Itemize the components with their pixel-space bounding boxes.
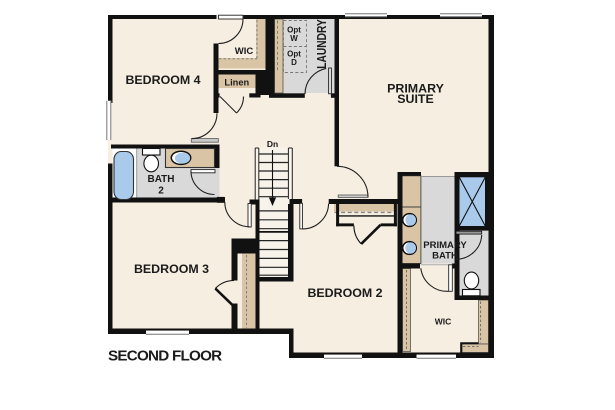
svg-text:Linen: Linen (224, 77, 249, 87)
svg-text:WIC: WIC (235, 46, 254, 57)
svg-text:2: 2 (158, 186, 164, 197)
svg-text:W: W (290, 34, 298, 43)
svg-text:WIC: WIC (435, 317, 452, 327)
svg-text:PRIMARY: PRIMARY (423, 240, 467, 251)
svg-text:SECOND FLOOR: SECOND FLOOR (108, 348, 222, 365)
svg-text:SUITE: SUITE (397, 92, 434, 106)
svg-text:BATH: BATH (432, 251, 458, 262)
svg-text:Dn: Dn (267, 139, 278, 149)
svg-text:D: D (291, 58, 297, 67)
svg-text:BEDROOM 3: BEDROOM 3 (134, 262, 209, 276)
svg-text:BEDROOM 4: BEDROOM 4 (125, 73, 200, 87)
svg-text:BATH: BATH (147, 174, 174, 185)
svg-text:LAUNDRY: LAUNDRY (314, 19, 329, 69)
svg-text:BEDROOM 2: BEDROOM 2 (307, 286, 382, 300)
